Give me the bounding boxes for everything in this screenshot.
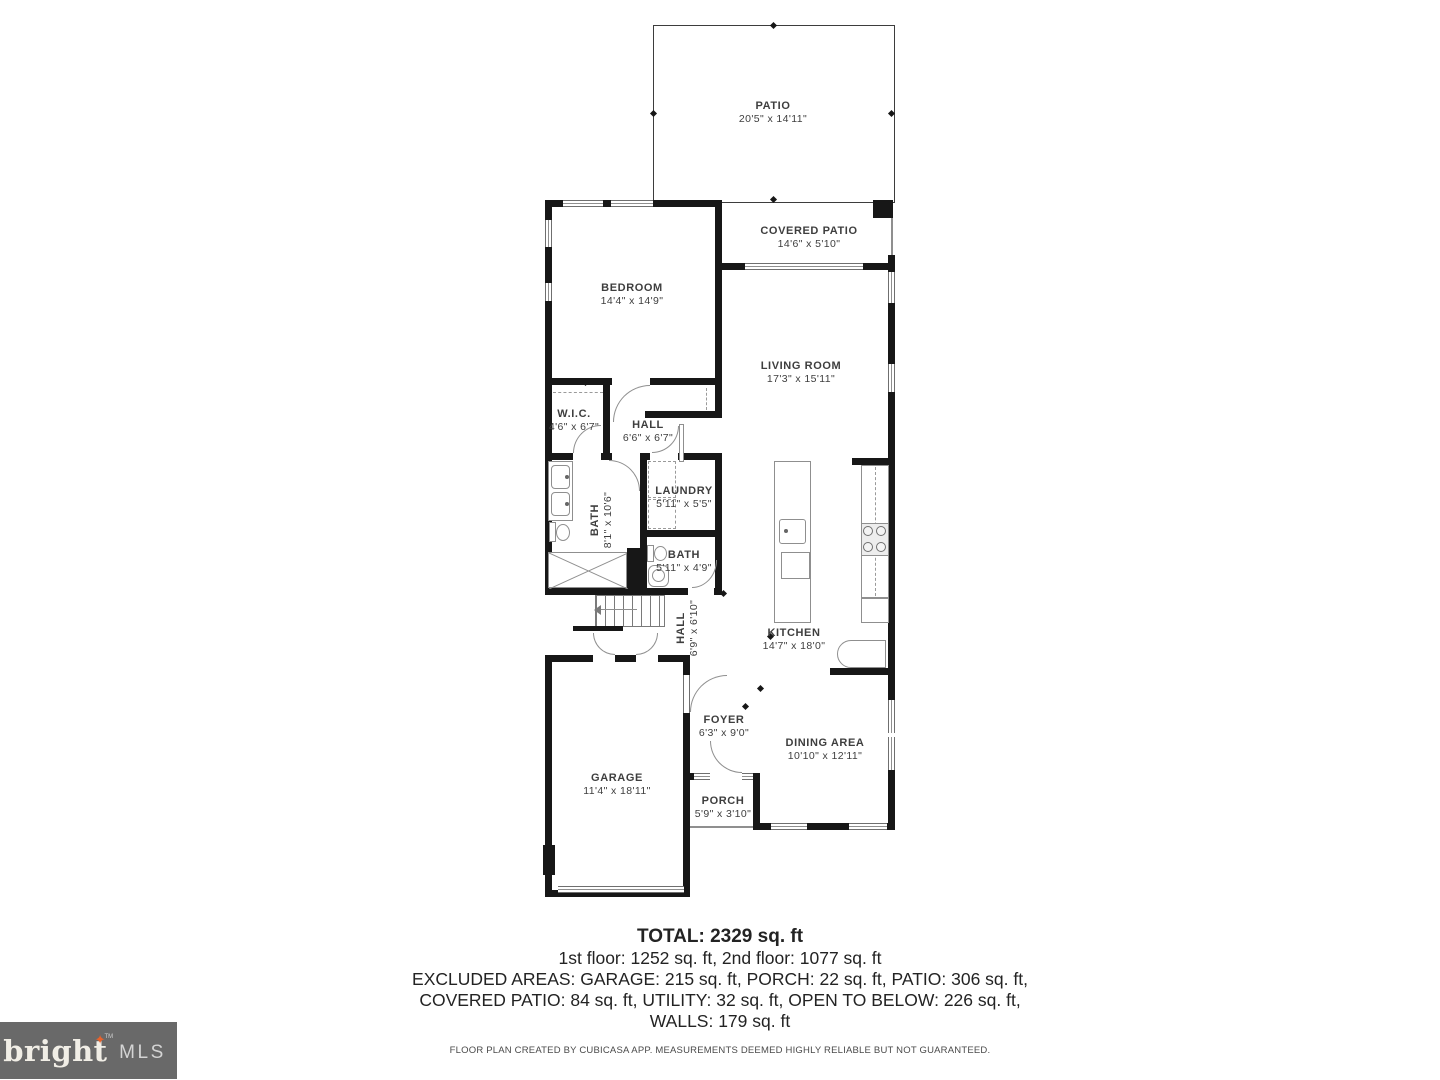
wall <box>887 823 895 830</box>
faucet-dot <box>565 475 569 479</box>
window <box>611 200 653 207</box>
wall <box>807 823 849 830</box>
excluded-areas-line2: COVERED PATIO: 84 sq. ft, UTILITY: 32 sq… <box>0 990 1440 1011</box>
room-label-dining: DINING AREA 10'10" x 12'11" <box>786 737 865 763</box>
room-dims: 4'6" x 6'7" <box>549 422 599 434</box>
burner <box>876 542 886 552</box>
wall <box>683 655 690 675</box>
wall-pilaster <box>543 845 555 875</box>
wall <box>888 770 895 830</box>
room-label-hall-upper: HALL 6'6" x 6'7" <box>623 419 673 445</box>
window <box>849 823 887 830</box>
room-dims: 10'10" x 12'11" <box>786 751 865 763</box>
window <box>888 364 895 392</box>
room-dims: 8'1" x 10'6" <box>603 492 615 549</box>
room-name: W.I.C. <box>557 408 591 420</box>
staircase <box>595 595 665 627</box>
room-dims: 11'4" x 18'11" <box>583 786 650 798</box>
room-dims: 14'6" x 5'10" <box>760 239 857 251</box>
room-label-patio: PATIO 20'5" x 14'11" <box>739 100 807 126</box>
porch-edge <box>690 826 753 828</box>
door-swing-arc <box>690 675 727 712</box>
room-label-laundry: LAUNDRY 5'11" x 5'5" <box>655 485 713 511</box>
room-label-bath-small: BATH 5'11" x 4'9" <box>656 549 712 575</box>
window <box>888 700 895 733</box>
wall <box>715 453 722 595</box>
wall <box>545 453 573 460</box>
door-swing-arc <box>710 741 742 773</box>
shower-x <box>549 553 628 589</box>
window <box>545 283 552 301</box>
faucet-dot <box>784 529 788 533</box>
room-name: PATIO <box>756 100 791 112</box>
garage-door <box>558 886 684 893</box>
room-dims: 17'3" x 15'11" <box>761 374 842 386</box>
lower-cabinet <box>861 598 889 623</box>
room-label-bath-main: BATH 8'1" x 10'6" <box>589 492 615 549</box>
door-swing-arc <box>609 460 640 491</box>
refrigerator <box>837 640 886 668</box>
sidelite-window <box>694 773 710 780</box>
room-dims: 6'3" x 9'0" <box>699 728 749 740</box>
room-name: HALL <box>632 419 664 431</box>
tick-mark <box>720 590 727 597</box>
room-dims: 5'11" x 4'9" <box>656 563 712 575</box>
floor-plan-page: PATIO 20'5" x 14'11" COVERED PATIO 14'6"… <box>0 0 1440 1080</box>
room-label-kitchen: KITCHEN 14'7" x 18'0" <box>763 627 826 653</box>
window <box>888 272 895 303</box>
room-name: DINING AREA <box>786 737 865 749</box>
door-swing-arc <box>636 633 658 655</box>
island-cooktop <box>781 552 810 579</box>
burner <box>863 542 873 552</box>
room-name: BATH <box>589 504 601 536</box>
room-label-garage: GARAGE 11'4" x 18'11" <box>583 772 650 798</box>
room-label-porch: PORCH 5'9" x 3'10" <box>695 795 752 821</box>
room-name: PORCH <box>702 795 745 807</box>
room-name: HALL <box>675 612 687 644</box>
window <box>545 220 552 247</box>
room-name: BEDROOM <box>601 282 663 294</box>
room-dims: 5'11" x 5'5" <box>655 499 713 511</box>
floor-areas: 1st floor: 1252 sq. ft, 2nd floor: 1077 … <box>0 948 1440 969</box>
wall <box>545 655 593 662</box>
excluded-areas-line1: EXCLUDED AREAS: GARAGE: 215 sq. ft, PORC… <box>0 969 1440 990</box>
wall <box>545 378 612 385</box>
room-name: KITCHEN <box>767 627 820 639</box>
room-name: GARAGE <box>591 772 643 784</box>
toilet-bowl <box>556 524 570 541</box>
wall <box>722 263 745 270</box>
wall <box>545 588 688 595</box>
tick-mark <box>757 685 764 692</box>
room-name: FOYER <box>704 714 745 726</box>
room-label-hall-lower: HALL 6'9" x 6'10" <box>675 600 701 657</box>
trademark-symbol: TM <box>105 1034 114 1040</box>
room-name: LAUNDRY <box>655 485 713 497</box>
patio-post <box>873 200 893 218</box>
sliding-door <box>745 263 863 270</box>
room-dims: 6'6" x 6'7" <box>623 433 673 445</box>
room-dims: 6'9" x 6'10" <box>689 600 701 657</box>
room-name: BATH <box>668 549 700 561</box>
logo-mls-text: MLS <box>119 1042 166 1064</box>
wall <box>888 392 895 700</box>
wall <box>615 655 636 662</box>
room-label-foyer: FOYER 6'3" x 9'0" <box>699 714 749 740</box>
door-frame <box>683 675 690 713</box>
wall <box>645 530 722 537</box>
stair-arrow-head <box>594 605 601 615</box>
wall <box>603 378 610 460</box>
toilet-tank <box>647 545 654 562</box>
window <box>888 737 895 770</box>
room-dims: 14'7" x 18'0" <box>763 641 826 653</box>
stair-arrow-line <box>599 609 637 610</box>
tick-mark <box>742 703 749 710</box>
chase-block <box>627 548 643 588</box>
wall <box>650 378 722 385</box>
window <box>563 200 603 207</box>
wall <box>888 255 895 272</box>
bright-mls-logo: bright ✦ TM MLS <box>0 1022 177 1079</box>
wall <box>683 713 690 897</box>
island-sink <box>779 519 806 544</box>
wall <box>852 458 895 465</box>
wall <box>645 411 722 418</box>
wall <box>573 626 623 631</box>
room-label-covered-patio: COVERED PATIO 14'6" x 5'10" <box>760 225 857 251</box>
wall <box>753 773 760 830</box>
window <box>771 823 807 830</box>
room-label-bedroom: BEDROOM 14'4" x 14'9" <box>601 282 664 308</box>
open-door-leaf <box>679 424 684 462</box>
disclaimer-text: FLOOR PLAN CREATED BY CUBICASA APP. MEAS… <box>0 1045 1440 1056</box>
room-dims: 5'9" x 3'10" <box>695 809 752 821</box>
wall <box>755 823 771 830</box>
toilet-tank <box>549 522 556 542</box>
wall <box>601 453 612 460</box>
room-label-wic: W.I.C. 4'6" x 6'7" <box>549 408 599 434</box>
room-name: COVERED PATIO <box>760 225 857 237</box>
room-label-living-room: LIVING ROOM 17'3" x 15'11" <box>761 360 842 386</box>
faucet-dot <box>565 502 569 506</box>
burner <box>863 526 873 536</box>
total-area: TOTAL: 2329 sq. ft <box>0 926 1440 948</box>
door-swing-arc <box>593 633 615 655</box>
room-dims: 20'5" x 14'11" <box>739 114 807 126</box>
wall <box>715 200 722 418</box>
shower <box>548 552 627 588</box>
wall <box>888 303 895 364</box>
excluded-areas-line3: WALLS: 179 sq. ft <box>0 1011 1440 1032</box>
area-summary: TOTAL: 2329 sq. ft 1st floor: 1252 sq. f… <box>0 926 1440 1032</box>
closet-rod <box>706 388 707 410</box>
room-dims: 14'4" x 14'9" <box>601 296 664 308</box>
burner <box>876 526 886 536</box>
logo-brand-text: bright <box>3 1034 107 1068</box>
room-name: LIVING ROOM <box>761 360 842 372</box>
wall <box>830 668 890 675</box>
closet-shelf <box>553 392 603 393</box>
